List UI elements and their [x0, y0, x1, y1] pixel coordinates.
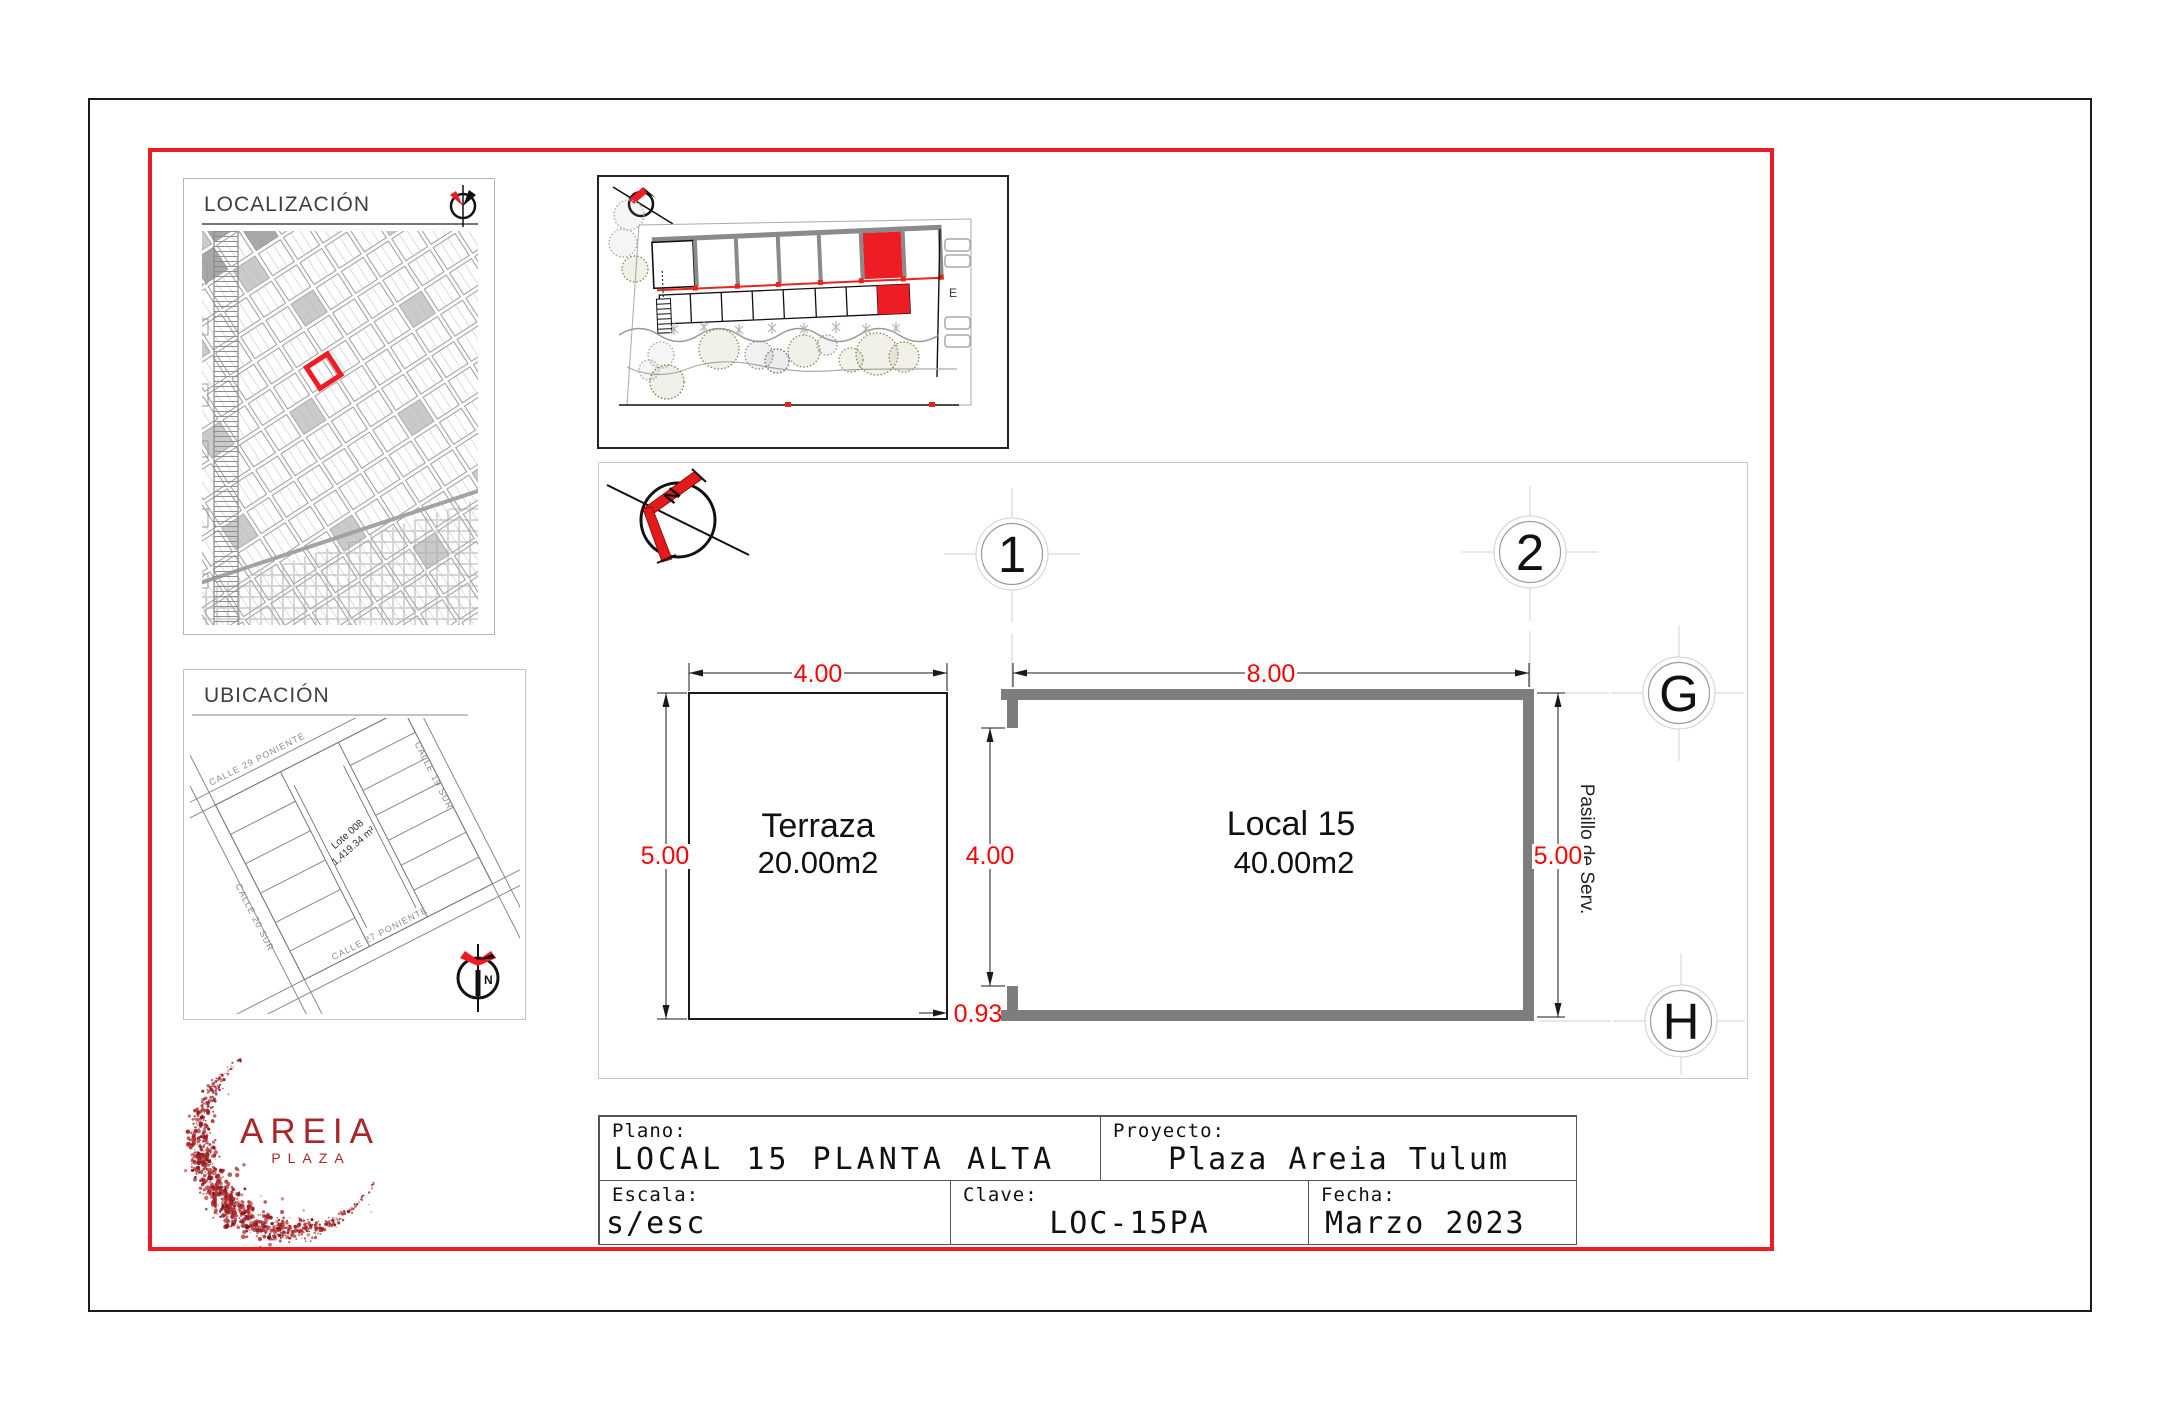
dim-local-height: 5.00 [1534, 842, 1583, 870]
dim-opening: 4.00 [966, 842, 1015, 870]
terraza-name: Terraza [761, 807, 874, 845]
highlighted-unit-upper [863, 232, 903, 280]
highlighted-unit-lower [877, 284, 910, 314]
stairs [655, 271, 672, 334]
titleblock-fecha-cell: Fecha: Marzo 2023 [1308, 1180, 1577, 1245]
grid-bubble-1: 1 [976, 518, 1048, 590]
grid-bubble-g: G [1643, 657, 1715, 729]
terraza-area: 20.00m2 [758, 845, 879, 880]
ubicacion-panel: UBICACIÓN [183, 669, 526, 1020]
fecha-value: Marzo 2023 [1309, 1206, 1576, 1241]
north-compass-icon [450, 185, 476, 227]
dim-terraza-height: 5.00 [641, 842, 690, 870]
proyecto-value: Plaza Areia Tulum [1101, 1142, 1576, 1177]
street-label-left: CALLE 20 SUR [233, 882, 276, 953]
street-map: CALLE 29 PONIENTE CALLE 27 PONIENTE CALL… [184, 670, 525, 1019]
svg-text:G: G [1659, 665, 1699, 722]
street-label-bottom: CALLE 27 PONIENTE [330, 905, 429, 962]
construction-lines [944, 486, 1745, 1075]
clave-label: Clave: [951, 1181, 1308, 1206]
plan-sheet: LOCALIZACIÓN [0, 0, 2176, 1408]
clave-value: LOC-15PA [951, 1206, 1308, 1241]
titleblock-proyecto-cell: Proyecto: Plaza Areia Tulum [1100, 1116, 1577, 1181]
building-strip [652, 225, 946, 334]
titleblock-plano-cell: Plano: LOCAL 15 PLANTA ALTA [599, 1116, 1101, 1181]
zone-divider [937, 229, 940, 377]
titleblock-clave-cell: Clave: LOC-15PA [950, 1180, 1309, 1245]
title-block: Plano: LOCAL 15 PLANTA ALTA Proyecto: Pl… [598, 1115, 1577, 1245]
localizacion-title: LOCALIZACIÓN [204, 193, 370, 216]
plano-value: LOCAL 15 PLANTA ALTA [600, 1142, 1100, 1177]
ubicacion-title: UBICACIÓN [204, 684, 330, 707]
site-plan: E [599, 177, 1003, 443]
ubicacion-map: UBICACIÓN [184, 670, 525, 1019]
street-label-top: CALLE 29 PONIENTE [207, 730, 306, 787]
proyecto-label: Proyecto: [1101, 1117, 1576, 1142]
local-area: 40.00m2 [1234, 845, 1355, 880]
dim-terraza-width: 4.00 [794, 660, 843, 688]
site-plan-panel: E [597, 175, 1009, 449]
fecha-label: Fecha: [1309, 1181, 1576, 1206]
floor-plan: 1 2 G H [599, 463, 1747, 1078]
localizacion-map: LOCALIZACIÓN [184, 179, 494, 634]
svg-text:1: 1 [998, 526, 1026, 583]
zone-label: E [949, 286, 957, 300]
brand-logo: AREIA PLAZA [170, 1038, 430, 1253]
north-compass-icon: N [607, 469, 749, 563]
grid-bubble-2: 2 [1494, 516, 1566, 588]
floor-plan-panel: 1 2 G H [598, 462, 1748, 1079]
logo-sub-text: PLAZA [271, 1150, 350, 1166]
dim-local-width: 8.00 [1247, 660, 1296, 688]
logo-brand-text: AREIA [240, 1112, 380, 1151]
escala-value: s/esc [600, 1206, 950, 1241]
escala-label: Escala: [600, 1181, 950, 1206]
city-grid-map [184, 179, 494, 634]
north-compass-icon: N [458, 944, 498, 1012]
local-name: Local 15 [1227, 805, 1356, 843]
svg-text:H: H [1663, 993, 1700, 1050]
north-label: N [484, 973, 493, 987]
palm-marks [670, 321, 900, 336]
hatched-road [214, 229, 238, 627]
titleblock-escala-cell: Escala: s/esc [599, 1180, 951, 1245]
grid-bubble-h: H [1645, 985, 1717, 1057]
localizacion-panel: LOCALIZACIÓN [183, 178, 495, 635]
svg-text:2: 2 [1516, 524, 1544, 581]
street-label-right: CALLE 19 SUR [413, 740, 456, 811]
plano-label: Plano: [600, 1117, 1100, 1142]
dim-offset: 0.93 [954, 1000, 1003, 1028]
